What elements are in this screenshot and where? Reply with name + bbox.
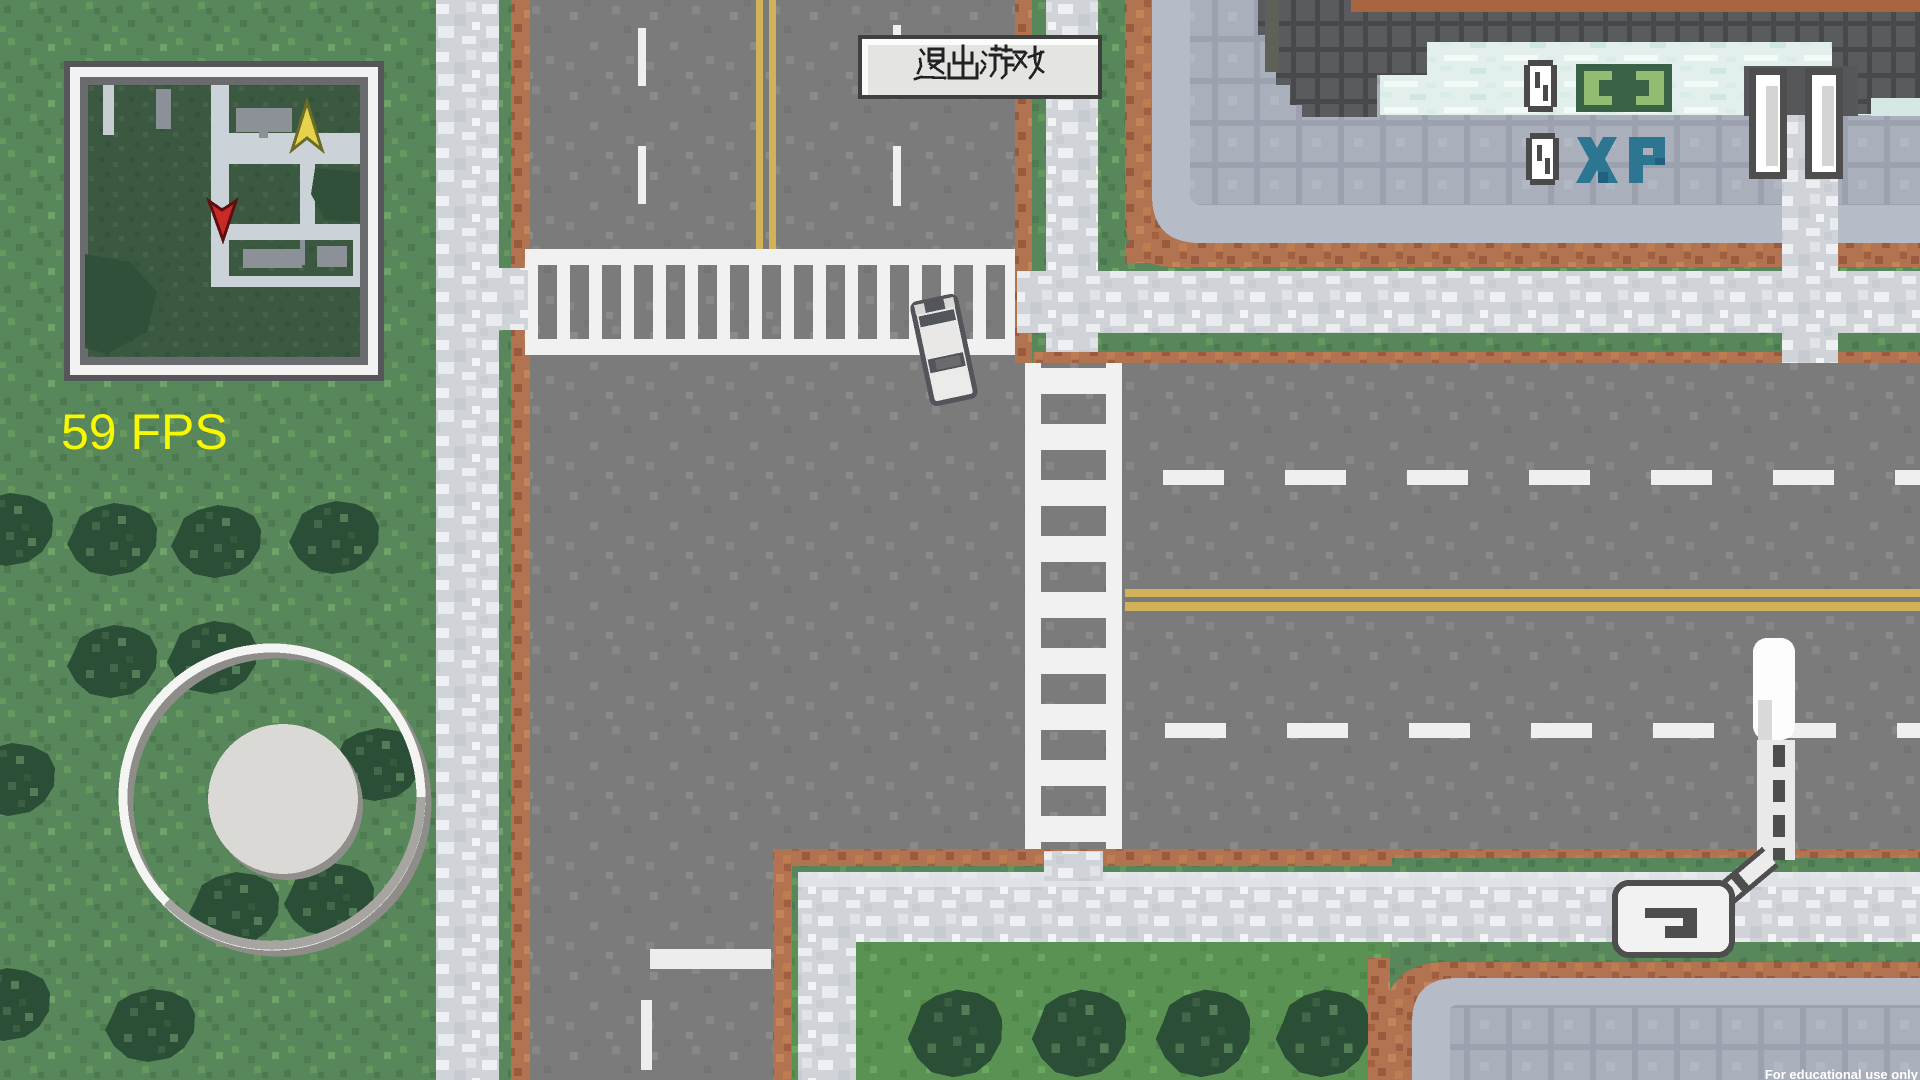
svg-text:59 FPS: 59 FPS (61, 404, 228, 460)
svg-text:For educational use only: For educational use only (1765, 1067, 1919, 1080)
